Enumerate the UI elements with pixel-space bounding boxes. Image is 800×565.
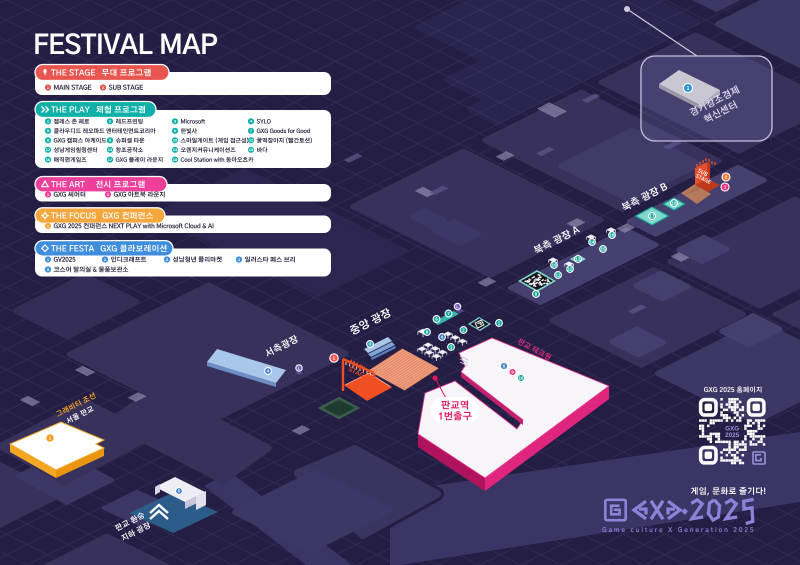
- svg-text:1: 1: [724, 185, 727, 190]
- svg-text:17: 17: [650, 214, 655, 219]
- svg-text:15: 15: [249, 147, 254, 152]
- svg-text:14: 14: [173, 147, 178, 152]
- svg-text:10: 10: [519, 376, 524, 381]
- svg-text:18: 18: [672, 201, 677, 206]
- svg-text:16: 16: [610, 233, 615, 238]
- svg-text:1: 1: [49, 436, 52, 442]
- svg-text:16: 16: [46, 157, 51, 162]
- svg-text:1: 1: [333, 356, 336, 362]
- svg-text:10: 10: [173, 138, 178, 143]
- svg-text:15: 15: [601, 247, 606, 252]
- svg-text:14: 14: [590, 240, 595, 245]
- svg-text:18: 18: [173, 157, 178, 162]
- svg-text:2025: 2025: [725, 432, 740, 439]
- svg-text:2: 2: [725, 175, 728, 180]
- svg-text:1: 1: [687, 86, 690, 92]
- svg-text:17: 17: [108, 157, 113, 162]
- svg-text:10: 10: [552, 263, 557, 268]
- svg-text:13: 13: [108, 147, 113, 152]
- svg-text:11: 11: [556, 273, 561, 278]
- svg-text:13: 13: [576, 257, 581, 262]
- svg-text:12: 12: [568, 267, 573, 272]
- svg-text:12: 12: [46, 147, 51, 152]
